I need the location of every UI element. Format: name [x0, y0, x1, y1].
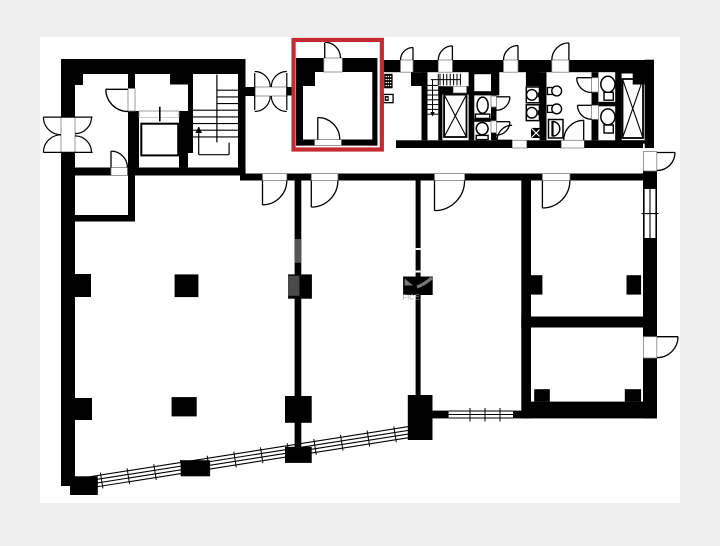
- svg-text:FICE: FICE: [403, 293, 420, 302]
